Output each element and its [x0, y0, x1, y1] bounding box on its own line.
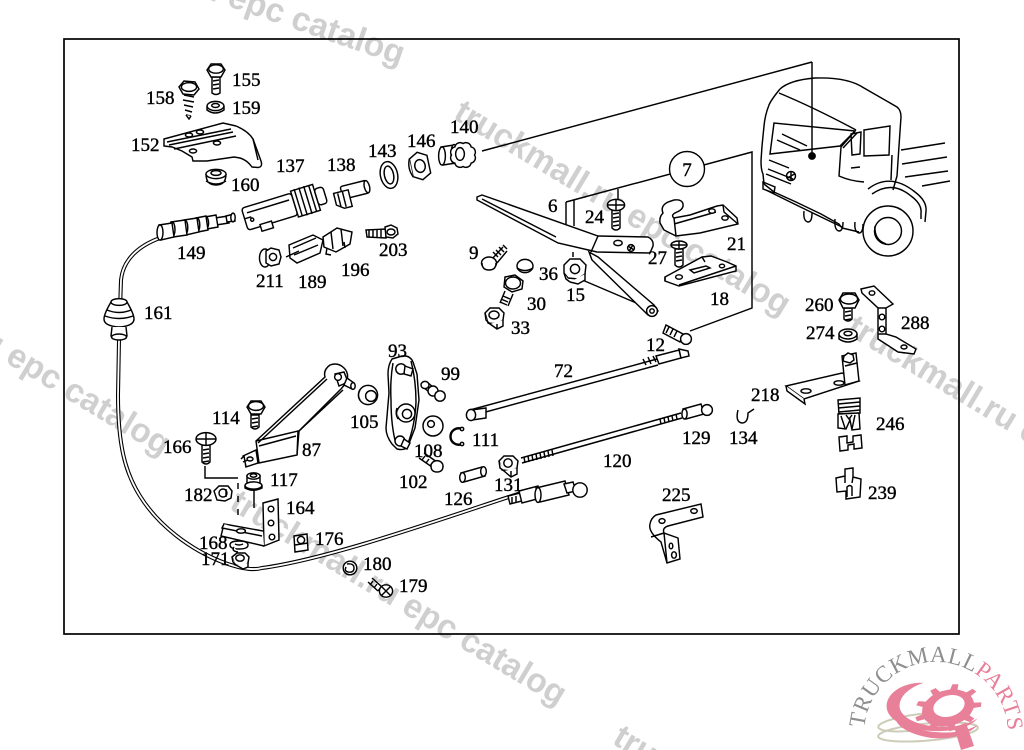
svg-text:126: 126: [444, 489, 473, 510]
svg-text:105: 105: [350, 412, 379, 433]
svg-text:12: 12: [646, 335, 665, 356]
svg-text:93: 93: [388, 341, 407, 362]
svg-text:143: 143: [368, 141, 397, 162]
svg-text:134: 134: [729, 428, 758, 449]
svg-text:260: 260: [805, 295, 834, 316]
svg-text:160: 160: [231, 175, 260, 196]
svg-text:120: 120: [603, 451, 632, 472]
svg-text:131: 131: [494, 475, 523, 496]
svg-text:24: 24: [585, 207, 605, 228]
svg-text:288: 288: [901, 313, 930, 334]
svg-text:159: 159: [232, 98, 261, 119]
svg-text:274: 274: [806, 323, 835, 344]
svg-text:182: 182: [184, 485, 213, 506]
svg-text:138: 138: [327, 155, 356, 176]
svg-text:176: 176: [315, 529, 344, 550]
svg-text:155: 155: [232, 70, 261, 91]
svg-text:117: 117: [270, 470, 298, 491]
svg-text:179: 179: [399, 576, 428, 597]
svg-text:189: 189: [298, 272, 327, 293]
svg-text:164: 164: [286, 498, 315, 519]
svg-text:246: 246: [876, 414, 905, 435]
svg-text:7: 7: [682, 160, 692, 181]
svg-text:137: 137: [276, 156, 305, 177]
svg-text:239: 239: [868, 483, 897, 504]
svg-text:218: 218: [751, 385, 780, 406]
svg-text:161: 161: [144, 303, 173, 324]
svg-text:33: 33: [511, 318, 530, 339]
svg-text:30: 30: [527, 294, 546, 315]
svg-text:129: 129: [682, 428, 711, 449]
svg-text:171: 171: [201, 549, 230, 570]
svg-text:87: 87: [302, 440, 321, 461]
svg-text:158: 158: [146, 88, 175, 109]
svg-text:196: 196: [341, 260, 370, 281]
svg-text:21: 21: [727, 234, 746, 255]
svg-text:99: 99: [441, 364, 460, 385]
svg-text:152: 152: [131, 135, 160, 156]
svg-text:180: 180: [363, 554, 392, 575]
svg-text:203: 203: [379, 240, 408, 261]
svg-text:36: 36: [539, 264, 558, 285]
svg-text:225: 225: [662, 485, 691, 506]
svg-text:9: 9: [469, 243, 479, 264]
svg-text:108: 108: [414, 441, 443, 462]
svg-text:166: 166: [163, 437, 192, 458]
svg-text:27: 27: [648, 248, 667, 269]
svg-text:211: 211: [256, 271, 284, 292]
svg-text:149: 149: [177, 243, 206, 264]
svg-text:140: 140: [450, 117, 479, 138]
svg-text:111: 111: [472, 430, 499, 451]
svg-text:102: 102: [399, 472, 428, 493]
svg-text:18: 18: [710, 289, 729, 310]
svg-text:72: 72: [554, 361, 573, 382]
svg-text:114: 114: [212, 408, 240, 429]
svg-text:6: 6: [548, 196, 558, 217]
svg-text:15: 15: [566, 285, 585, 306]
svg-text:146: 146: [407, 131, 436, 152]
